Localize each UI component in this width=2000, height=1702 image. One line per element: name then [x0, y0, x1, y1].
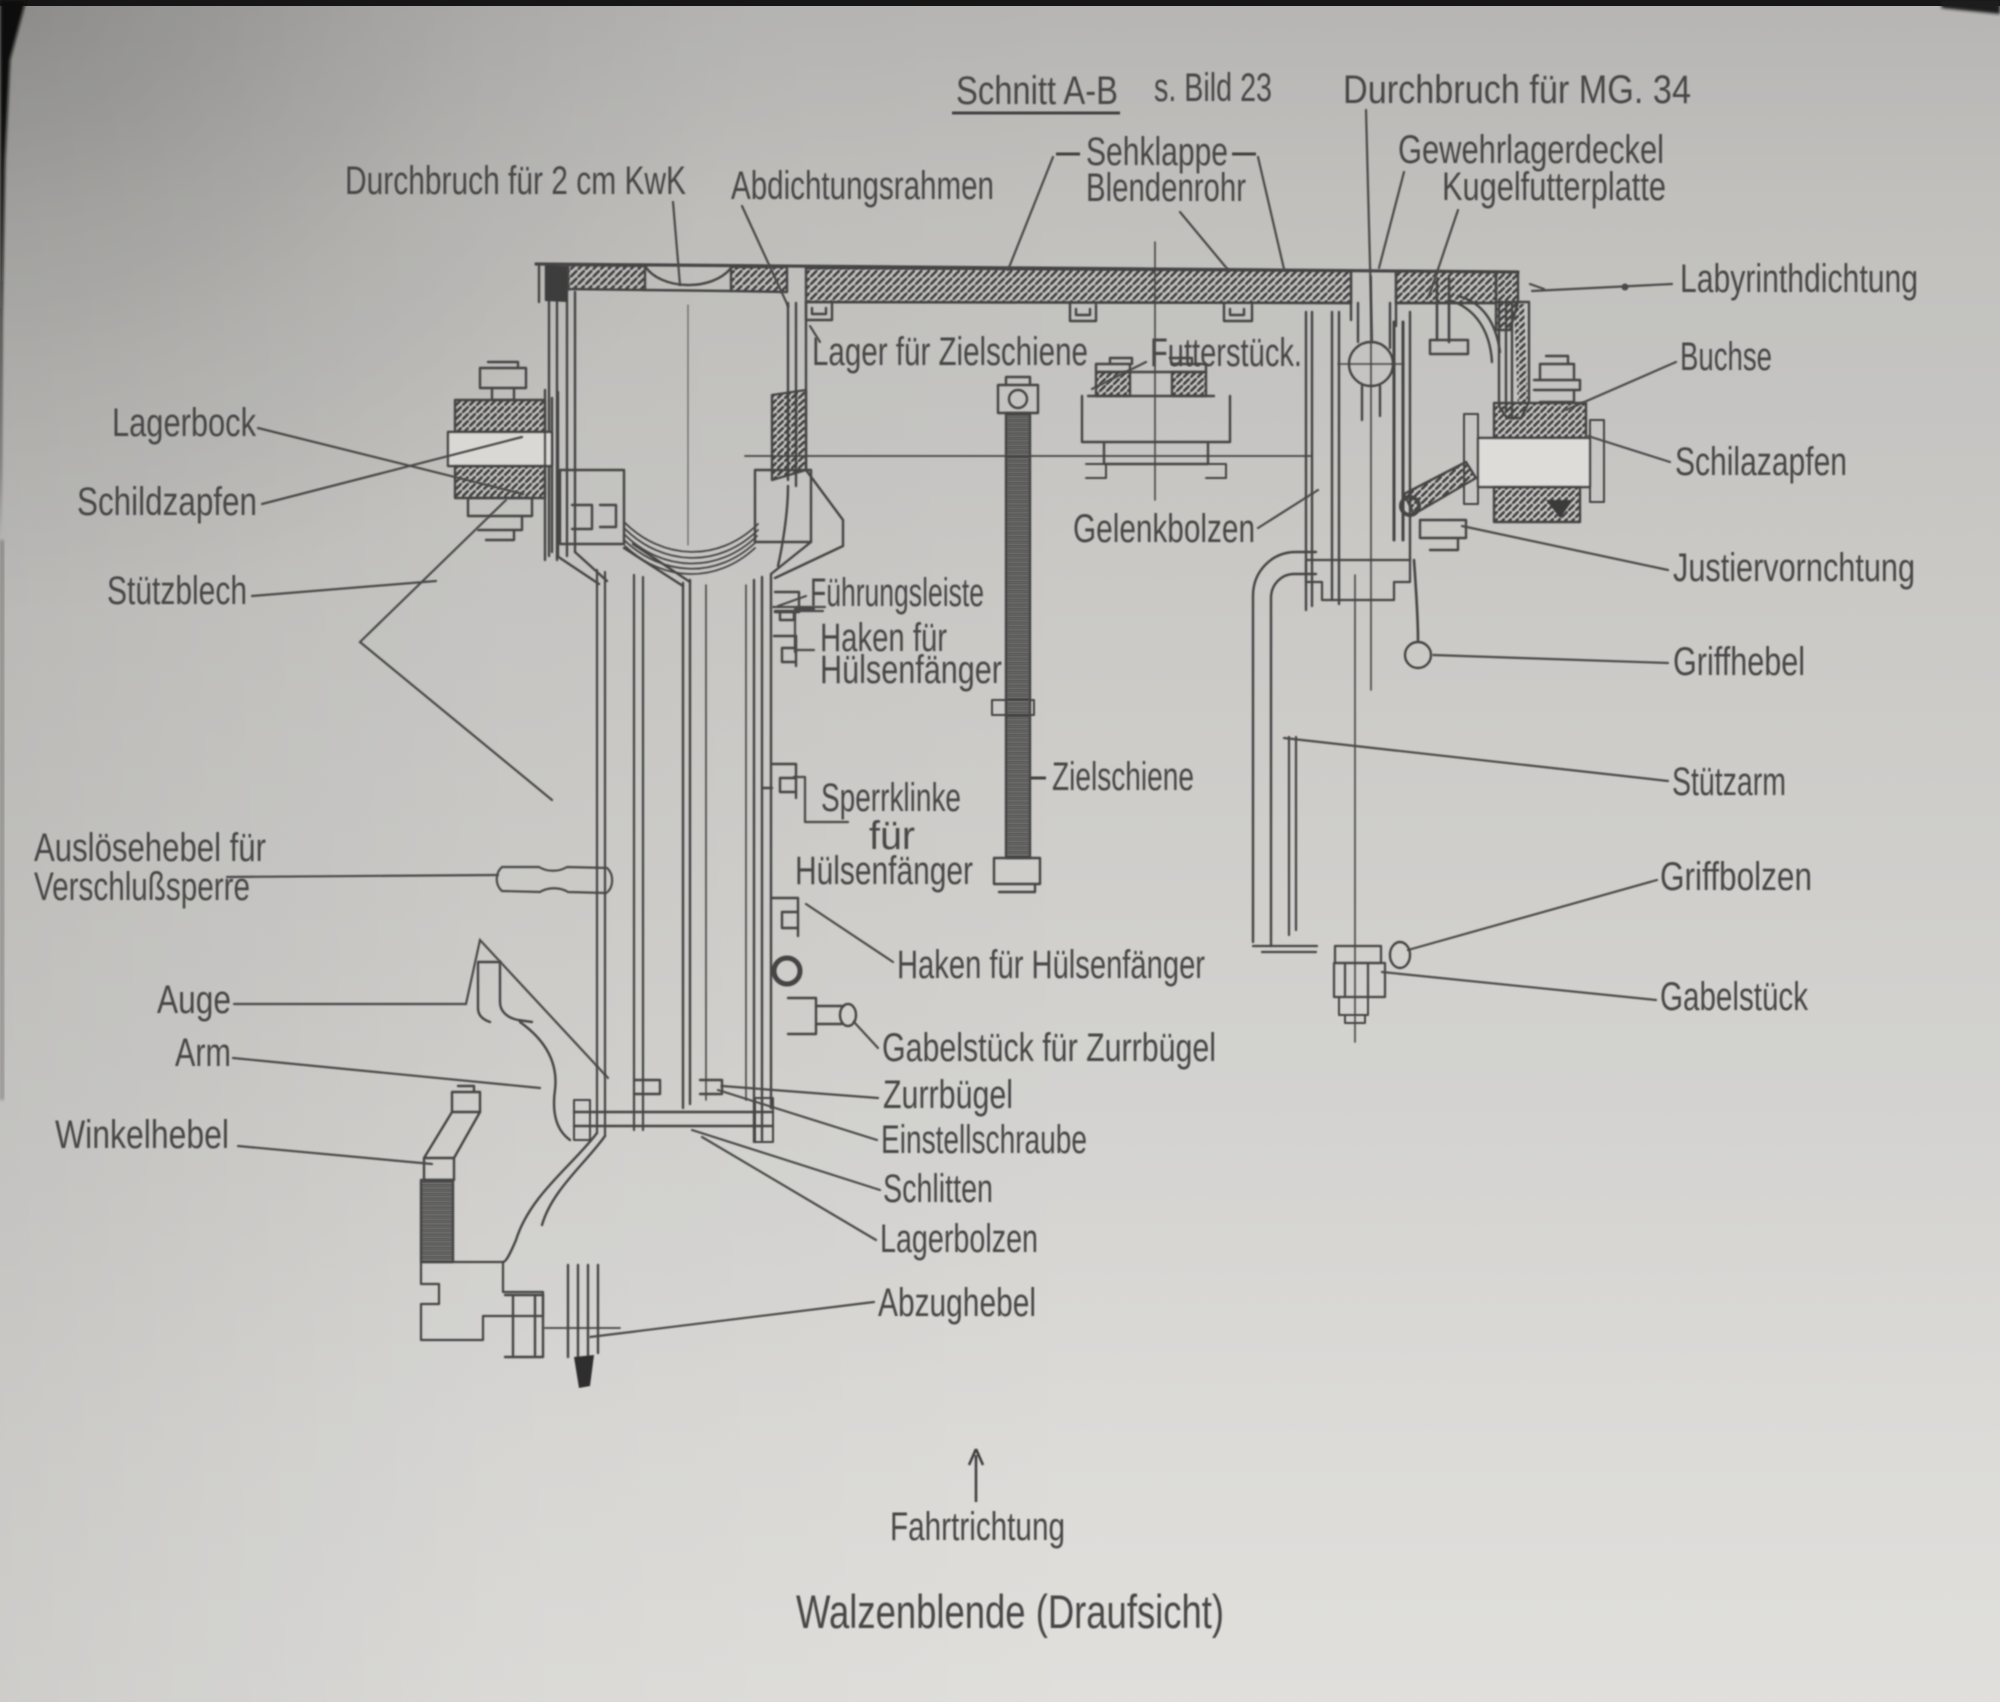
svg-text:Winkelhebel: Winkelhebel — [55, 1113, 229, 1157]
svg-text:Kugelfutterplatte: Kugelfutterplatte — [1442, 165, 1666, 209]
svg-text:s. Bild 23: s. Bild 23 — [1154, 66, 1272, 110]
svg-text:Stützarm: Stützarm — [1672, 760, 1786, 804]
svg-text:Futterstück.: Futterstück. — [1150, 331, 1302, 375]
svg-text:Lagerbolzen: Lagerbolzen — [880, 1217, 1038, 1261]
svg-text:Justiervornchtung: Justiervornchtung — [1673, 546, 1915, 590]
svg-text:Gelenkbolzen: Gelenkbolzen — [1073, 507, 1255, 551]
svg-text:Gabelstück: Gabelstück — [1660, 975, 1809, 1019]
svg-text:Labyrinthdichtung: Labyrinthdichtung — [1680, 257, 1918, 301]
svg-text:Hülsenfänger: Hülsenfänger — [795, 849, 973, 893]
svg-text:Walzenblende (Draufsicht): Walzenblende (Draufsicht) — [796, 1585, 1224, 1638]
svg-text:Griffbolzen: Griffbolzen — [1660, 855, 1812, 899]
svg-text:Lagerbock: Lagerbock — [112, 401, 257, 445]
svg-text:Fahrtrichtung: Fahrtrichtung — [890, 1505, 1065, 1549]
svg-text:Abzughebel: Abzughebel — [878, 1281, 1036, 1325]
svg-text:Zielschiene: Zielschiene — [1052, 755, 1194, 799]
svg-text:Stützblech: Stützblech — [107, 569, 247, 613]
svg-text:Auslösehebel für: Auslösehebel für — [34, 826, 266, 870]
svg-text:Auge: Auge — [157, 978, 231, 1022]
svg-text:Durchbruch für MG. 34: Durchbruch für MG. 34 — [1343, 68, 1691, 112]
svg-text:Arm: Arm — [175, 1031, 231, 1075]
svg-text:Durchbruch für 2 cm KwK: Durchbruch für 2 cm KwK — [345, 159, 686, 203]
svg-text:Schnitt A-B: Schnitt A-B — [956, 69, 1118, 113]
svg-text:Führungsleiste: Führungsleiste — [810, 571, 984, 615]
svg-text:Lager für Zielschiene: Lager für Zielschiene — [812, 330, 1088, 374]
svg-text:Abdichtungsrahmen: Abdichtungsrahmen — [731, 164, 994, 208]
svg-text:Schildzapfen: Schildzapfen — [77, 480, 257, 524]
svg-text:Hülsenfänger: Hülsenfänger — [820, 648, 1002, 692]
svg-text:Schlitten: Schlitten — [883, 1167, 993, 1211]
svg-text:Griffhebel: Griffhebel — [1673, 640, 1805, 684]
svg-text:Zurrbügel: Zurrbügel — [883, 1073, 1013, 1117]
svg-text:Haken für Hülsenfänger: Haken für Hülsenfänger — [897, 943, 1205, 987]
svg-text:Verschlußsperre: Verschlußsperre — [34, 865, 250, 909]
svg-text:Gabelstück für Zurrbügel: Gabelstück für Zurrbügel — [882, 1026, 1216, 1070]
svg-text:Buchse: Buchse — [1680, 335, 1772, 379]
svg-text:Blendenrohr: Blendenrohr — [1086, 166, 1246, 210]
svg-text:Einstellschraube: Einstellschraube — [881, 1118, 1087, 1162]
svg-text:Schilazapfen: Schilazapfen — [1675, 440, 1847, 484]
